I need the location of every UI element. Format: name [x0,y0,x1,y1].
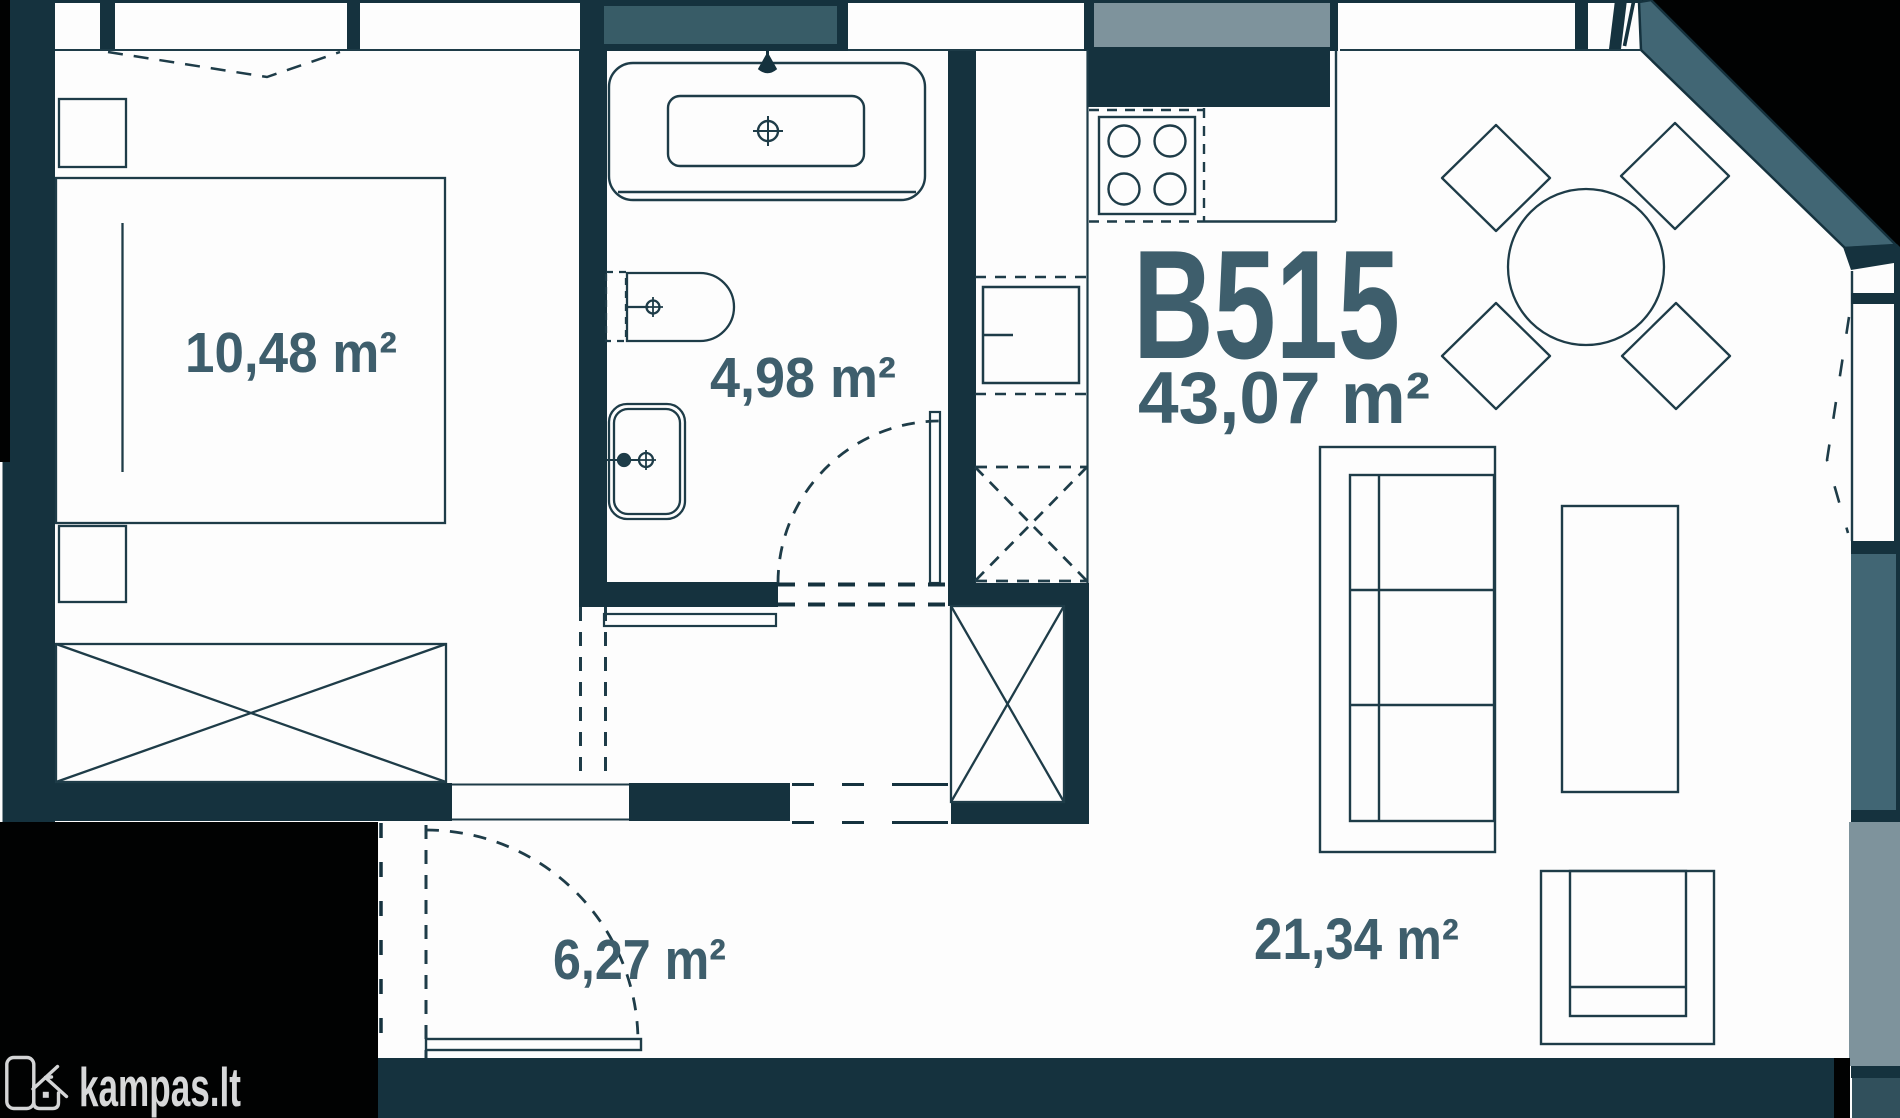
svg-text:21,34 m²: 21,34 m² [1254,907,1459,972]
svg-text:10,48 m²: 10,48 m² [185,321,397,385]
svg-text:4,98 m²: 4,98 m² [710,346,896,410]
svg-text:kampas.lt: kampas.lt [79,1056,241,1118]
svg-text:6,27 m²: 6,27 m² [553,928,726,992]
svg-text:43,07 m²: 43,07 m² [1138,358,1430,439]
